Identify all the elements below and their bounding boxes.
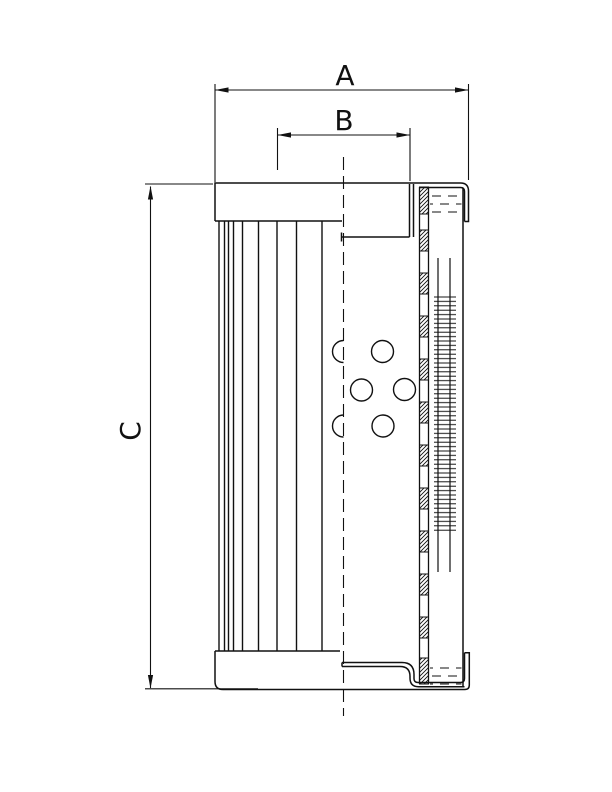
bottom-cap-adhesive-fill (430, 665, 462, 687)
core-tube-segment (420, 488, 429, 509)
core-tube-segment (420, 574, 429, 595)
dimension-b-label: B (334, 104, 353, 137)
core-tube-segment (420, 658, 429, 684)
support-mesh (434, 258, 456, 572)
core-tube-segment (420, 445, 429, 466)
technical-drawing-page: A B C (0, 0, 612, 792)
core-tube-segment (420, 230, 429, 251)
drawing-background (0, 0, 612, 792)
top-cap-adhesive-fill (430, 190, 462, 218)
dimension-a-label: A (335, 59, 354, 92)
filter-element-drawing: A B C (0, 0, 612, 792)
core-tube-segment (420, 531, 429, 552)
core-tube-segment (420, 359, 429, 380)
core-tube-segment (420, 316, 429, 337)
core-tube-segment (420, 402, 429, 423)
dimension-c-label: C (114, 421, 147, 441)
mesh-tick-band (434, 296, 456, 533)
core-tube-segment (420, 187, 429, 214)
core-tube-segment (420, 617, 429, 638)
core-tube-segment (420, 273, 429, 294)
